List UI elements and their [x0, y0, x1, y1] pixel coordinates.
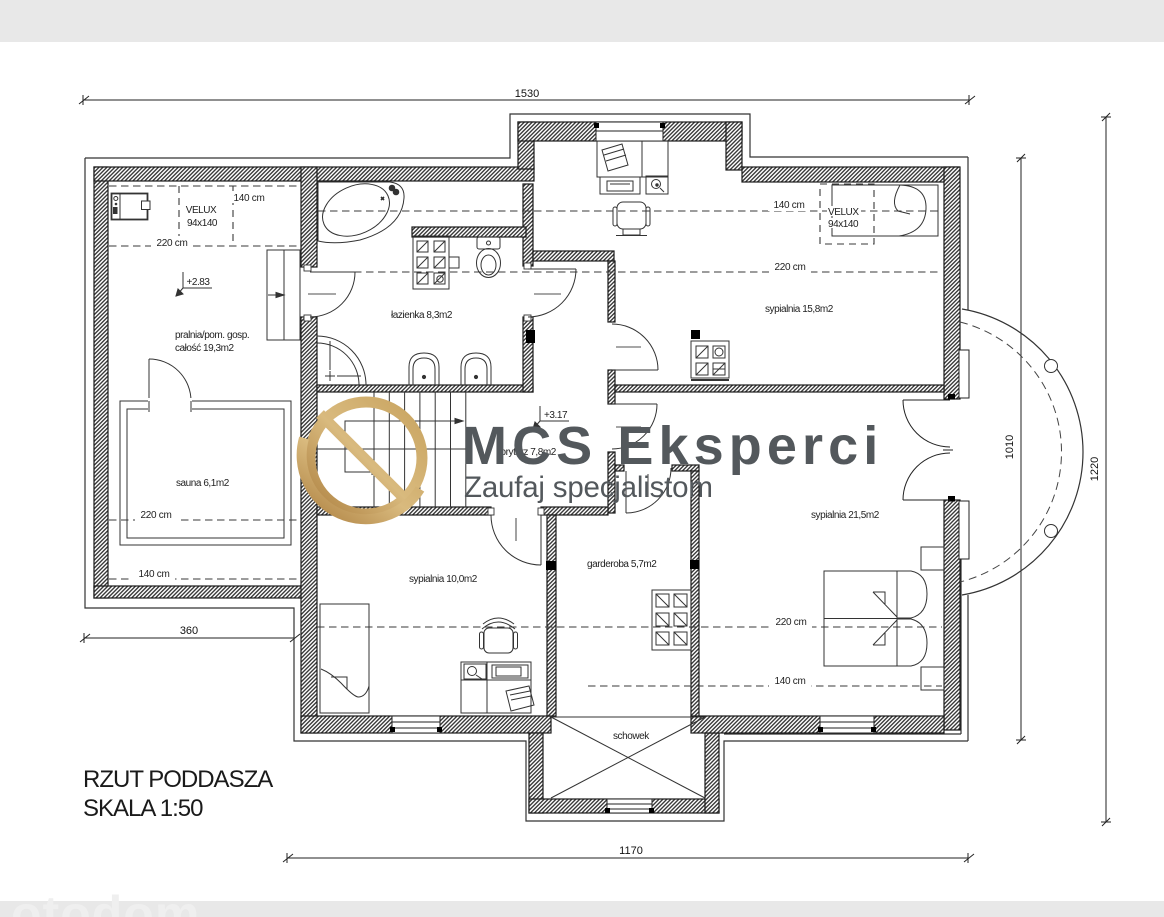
svg-text:140 cm: 140 cm — [139, 569, 170, 580]
svg-text:schowek: schowek — [613, 731, 650, 742]
svg-text:SKALA 1:50: SKALA 1:50 — [83, 795, 203, 822]
svg-text:sypialnia 10,0m2: sypialnia 10,0m2 — [409, 574, 478, 585]
svg-text:1010: 1010 — [1004, 435, 1016, 459]
svg-text:garderoba 5,7m2: garderoba 5,7m2 — [587, 559, 657, 570]
svg-text:360: 360 — [180, 625, 198, 637]
svg-text:220 cm: 220 cm — [141, 510, 172, 521]
svg-text:220 cm: 220 cm — [775, 262, 806, 273]
svg-text:otodom: otodom — [11, 886, 200, 917]
svg-text:całość 19,3m2: całość 19,3m2 — [175, 343, 235, 354]
svg-text:220 cm: 220 cm — [157, 238, 188, 249]
svg-text:1530: 1530 — [515, 88, 539, 100]
svg-text:220 cm: 220 cm — [776, 617, 807, 628]
svg-text:94x140: 94x140 — [187, 218, 218, 229]
svg-text:łazienka 8,3m2: łazienka 8,3m2 — [391, 310, 453, 321]
svg-text:sauna 6,1m2: sauna 6,1m2 — [176, 478, 230, 489]
svg-text:VELUX: VELUX — [186, 205, 217, 216]
svg-text:140 cm: 140 cm — [234, 193, 265, 204]
svg-text:sypialnia 15,8m2: sypialnia 15,8m2 — [765, 304, 834, 315]
svg-text:1170: 1170 — [619, 845, 643, 857]
svg-text:Zaufaj specjalistom: Zaufaj specjalistom — [464, 471, 713, 504]
svg-text:pralnia/pom. gosp.: pralnia/pom. gosp. — [175, 330, 249, 341]
svg-text:sypialnia 21,5m2: sypialnia 21,5m2 — [811, 510, 880, 521]
svg-text:1220: 1220 — [1089, 457, 1101, 481]
svg-text:140 cm: 140 cm — [775, 676, 806, 687]
svg-text:MCS Eksperci: MCS Eksperci — [462, 416, 883, 476]
svg-text:RZUT PODDASZA: RZUT PODDASZA — [83, 766, 273, 793]
svg-text:94x140: 94x140 — [828, 219, 859, 230]
svg-text:VELUX: VELUX — [828, 207, 859, 218]
svg-text:140 cm: 140 cm — [774, 200, 805, 211]
svg-text:+2.83: +2.83 — [186, 277, 210, 288]
